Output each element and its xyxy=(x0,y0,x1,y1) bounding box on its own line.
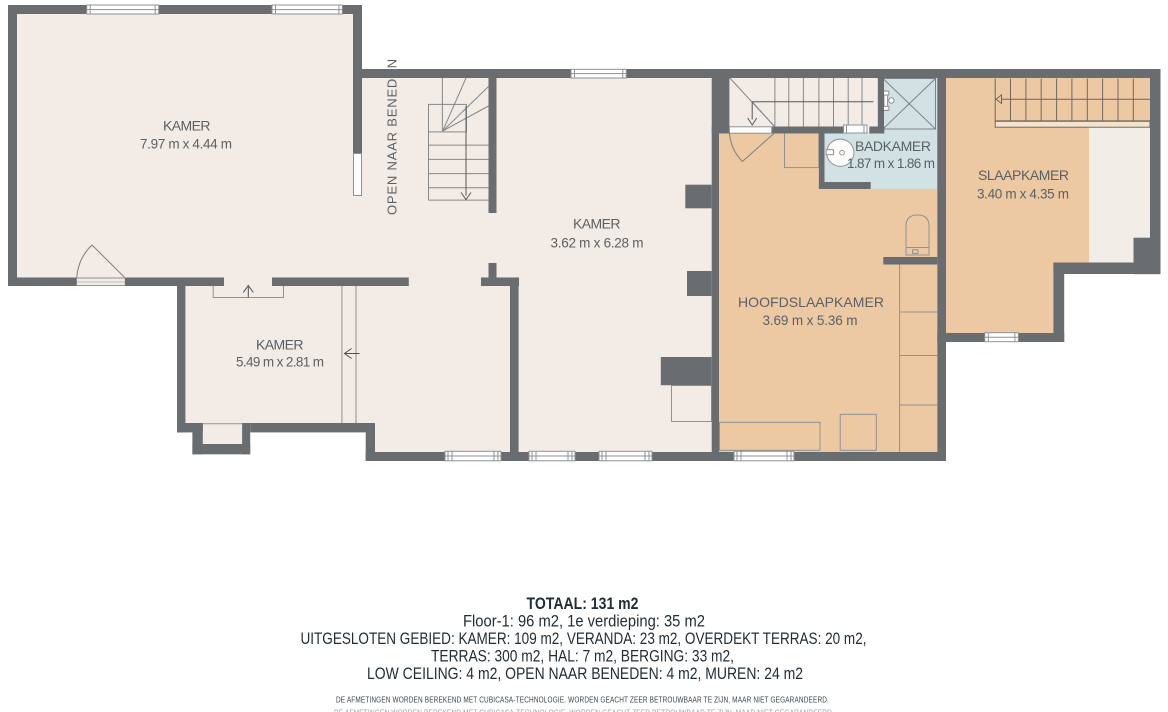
svg-text:KAMER: KAMER xyxy=(256,337,304,353)
svg-text:TOTAAL: 131 m2: TOTAAL: 131 m2 xyxy=(527,595,639,613)
svg-text:DE AFMETINGEN WORDEN BEREKEND: DE AFMETINGEN WORDEN BEREKEND MET CUBICA… xyxy=(336,695,829,705)
svg-text:TERRAS: 300 m2, HAL: 7 m2, BER: TERRAS: 300 m2, HAL: 7 m2, BERGING: 33 m… xyxy=(431,647,734,666)
svg-text:7.97 m x 4.44 m: 7.97 m x 4.44 m xyxy=(140,136,232,151)
svg-text:Floor-1: 96 m2, 1e verdieping:: Floor-1: 96 m2, 1e verdieping: 35 m2 xyxy=(463,612,705,631)
svg-text:5.49 m x 2.81 m: 5.49 m x 2.81 m xyxy=(236,355,324,370)
svg-text:3.62 m x 6.28 m: 3.62 m x 6.28 m xyxy=(551,236,644,251)
svg-text:KAMER: KAMER xyxy=(573,216,621,232)
svg-text:KAMER: KAMER xyxy=(163,118,211,134)
svg-text:BADKAMER: BADKAMER xyxy=(855,138,931,154)
svg-text:1.87 m x 1.86 m: 1.87 m x 1.86 m xyxy=(847,156,935,171)
svg-text:SLAAPKAMER: SLAAPKAMER xyxy=(978,167,1069,183)
svg-text:OPEN NAAR BENEDEN: OPEN NAAR BENEDEN xyxy=(385,58,400,215)
svg-text:LOW CEILING: 4 m2, OPEN NAAR B: LOW CEILING: 4 m2, OPEN NAAR BENEDEN: 4 … xyxy=(367,664,803,683)
svg-text:DE AFMETINGEN WORDEN BEREKEND: DE AFMETINGEN WORDEN BEREKEND MET CUBICA… xyxy=(334,708,834,712)
svg-text:HOOFDSLAAPKAMER: HOOFDSLAAPKAMER xyxy=(738,294,884,310)
svg-text:UITGESLOTEN GEBIED: KAMER: 109: UITGESLOTEN GEBIED: KAMER: 109 m2, VERAN… xyxy=(301,629,867,648)
svg-text:3.40 m x 4.35 m: 3.40 m x 4.35 m xyxy=(977,187,1069,202)
svg-text:3.69 m x 5.36 m: 3.69 m x 5.36 m xyxy=(763,313,858,328)
